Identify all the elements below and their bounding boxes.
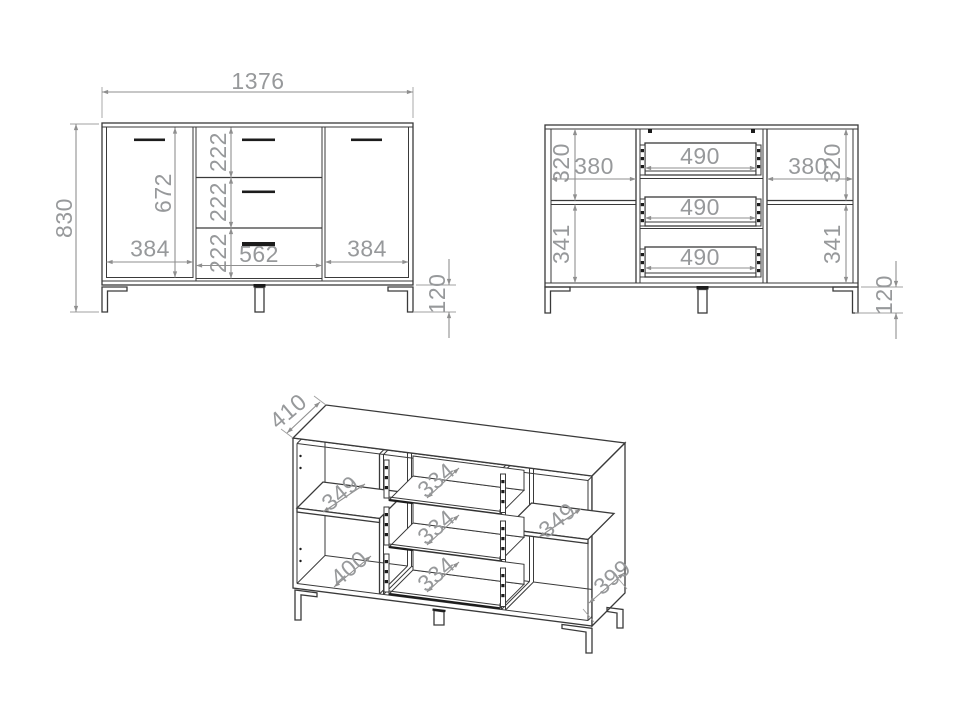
dim-drawer-height-3: 222 [205,233,231,273]
dim-left-upper-height: 320 [548,143,574,183]
dim-left-lower-height: 341 [548,224,574,264]
dim-left-door-width: 384 [130,236,170,262]
front-view-legs [102,284,413,312]
internal-view-legs [545,286,858,313]
front-view: 1376 830 672 222 222 222 384 562 384 [51,68,456,338]
drawer-2-handle [242,191,275,194]
dim-drawer-box-width-1: 490 [680,143,720,169]
dim-right-door-width: 384 [347,236,387,262]
dim-drawer-section-width: 562 [239,241,279,267]
left-door-handle [134,139,165,142]
dim-drawer-box-width-2: 490 [680,194,720,220]
right-door-handle [351,139,382,142]
internal-view-dimensions: 320 380 341 490 490 490 380 320 341 120 [548,129,903,339]
dim-drawer-height-1: 222 [205,132,231,172]
drawer-1-handle [242,139,275,142]
dim-internal-leg-height: 120 [871,275,897,315]
dim-left-compartment-width: 380 [574,153,614,179]
dim-front-leg-height: 120 [424,274,450,314]
front-view-dimensions: 1376 830 672 222 222 222 384 562 384 [51,68,456,338]
dim-overall-width: 1376 [231,68,284,94]
dim-right-lower-height: 341 [819,224,845,264]
dim-door-height: 672 [150,173,176,213]
dim-overall-height: 830 [51,198,77,238]
dim-drawer-box-width-3: 490 [680,244,720,270]
perspective-view: 410 349 400 334 334 334 349 399 [264,388,635,653]
technical-drawing-page: 1376 830 672 222 222 222 384 562 384 [0,0,955,716]
dim-right-upper-height: 320 [819,143,845,183]
internal-view: 320 380 341 490 490 490 380 320 341 120 [545,125,903,339]
sideboard-technical-drawing: 1376 830 672 222 222 222 384 562 384 [0,0,955,716]
dim-drawer-height-2: 222 [205,182,231,222]
